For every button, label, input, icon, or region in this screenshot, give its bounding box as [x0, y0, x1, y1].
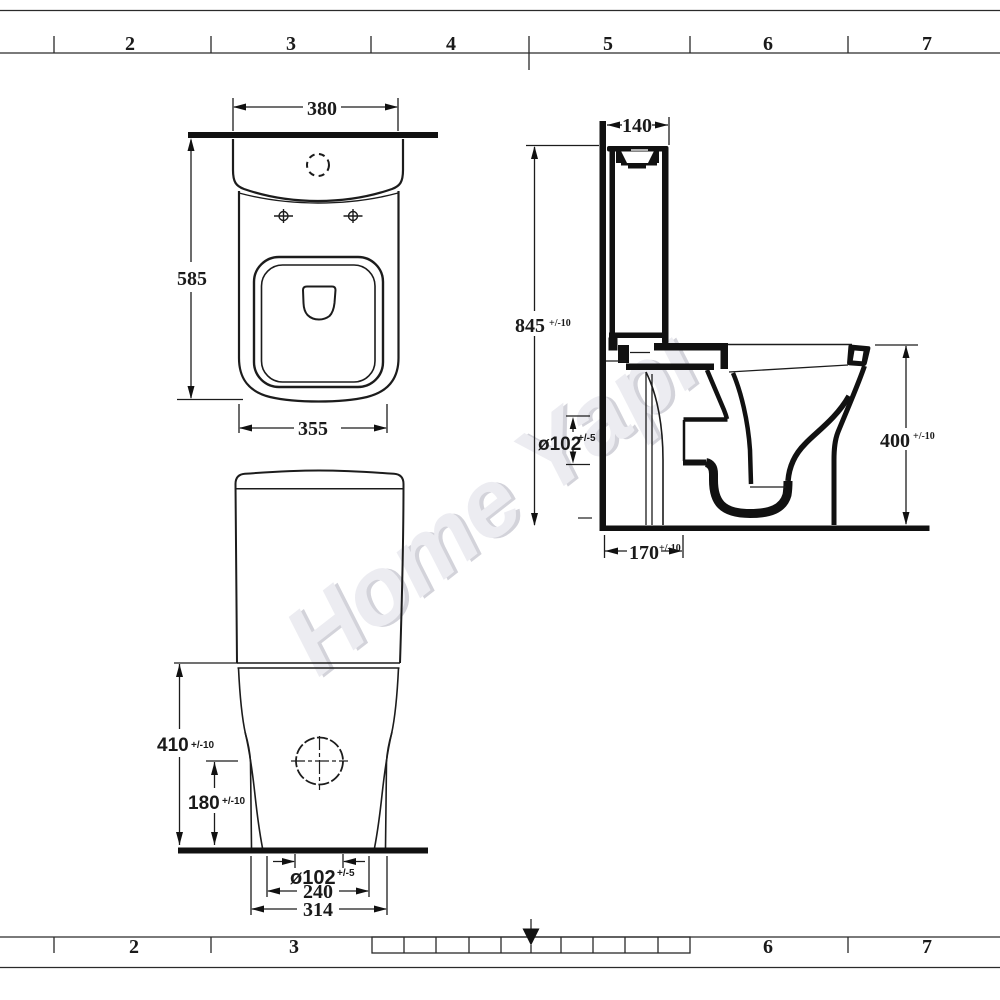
svg-text:+/-5: +/-5 — [337, 868, 355, 879]
svg-text:4: 4 — [446, 33, 456, 55]
svg-text:+/-10: +/-10 — [659, 543, 681, 554]
svg-text:170: 170 — [629, 542, 659, 564]
svg-text:+/-10: +/-10 — [913, 431, 935, 442]
svg-text:6: 6 — [763, 33, 773, 55]
svg-text:3: 3 — [286, 33, 296, 55]
svg-text:140: 140 — [622, 115, 652, 137]
svg-text:314: 314 — [303, 899, 333, 921]
svg-text:+/-10: +/-10 — [222, 796, 246, 807]
svg-text:+/-10: +/-10 — [549, 318, 571, 329]
svg-text:7: 7 — [922, 936, 932, 958]
svg-text:ø102: ø102 — [538, 434, 581, 455]
svg-text:2: 2 — [129, 936, 139, 958]
svg-text:+/-5: +/-5 — [578, 433, 596, 444]
svg-text:355: 355 — [298, 418, 328, 440]
svg-text:5: 5 — [603, 33, 613, 55]
svg-text:410: 410 — [157, 735, 189, 756]
svg-text:3: 3 — [289, 936, 299, 958]
svg-text:7: 7 — [922, 33, 932, 55]
svg-text:400: 400 — [880, 430, 910, 452]
svg-text:845: 845 — [515, 315, 545, 337]
svg-text:+/-10: +/-10 — [191, 740, 215, 751]
svg-text:2: 2 — [125, 33, 135, 55]
svg-text:6: 6 — [763, 936, 773, 958]
svg-text:180: 180 — [188, 793, 220, 814]
svg-text:585: 585 — [177, 268, 207, 290]
svg-text:380: 380 — [307, 98, 337, 120]
